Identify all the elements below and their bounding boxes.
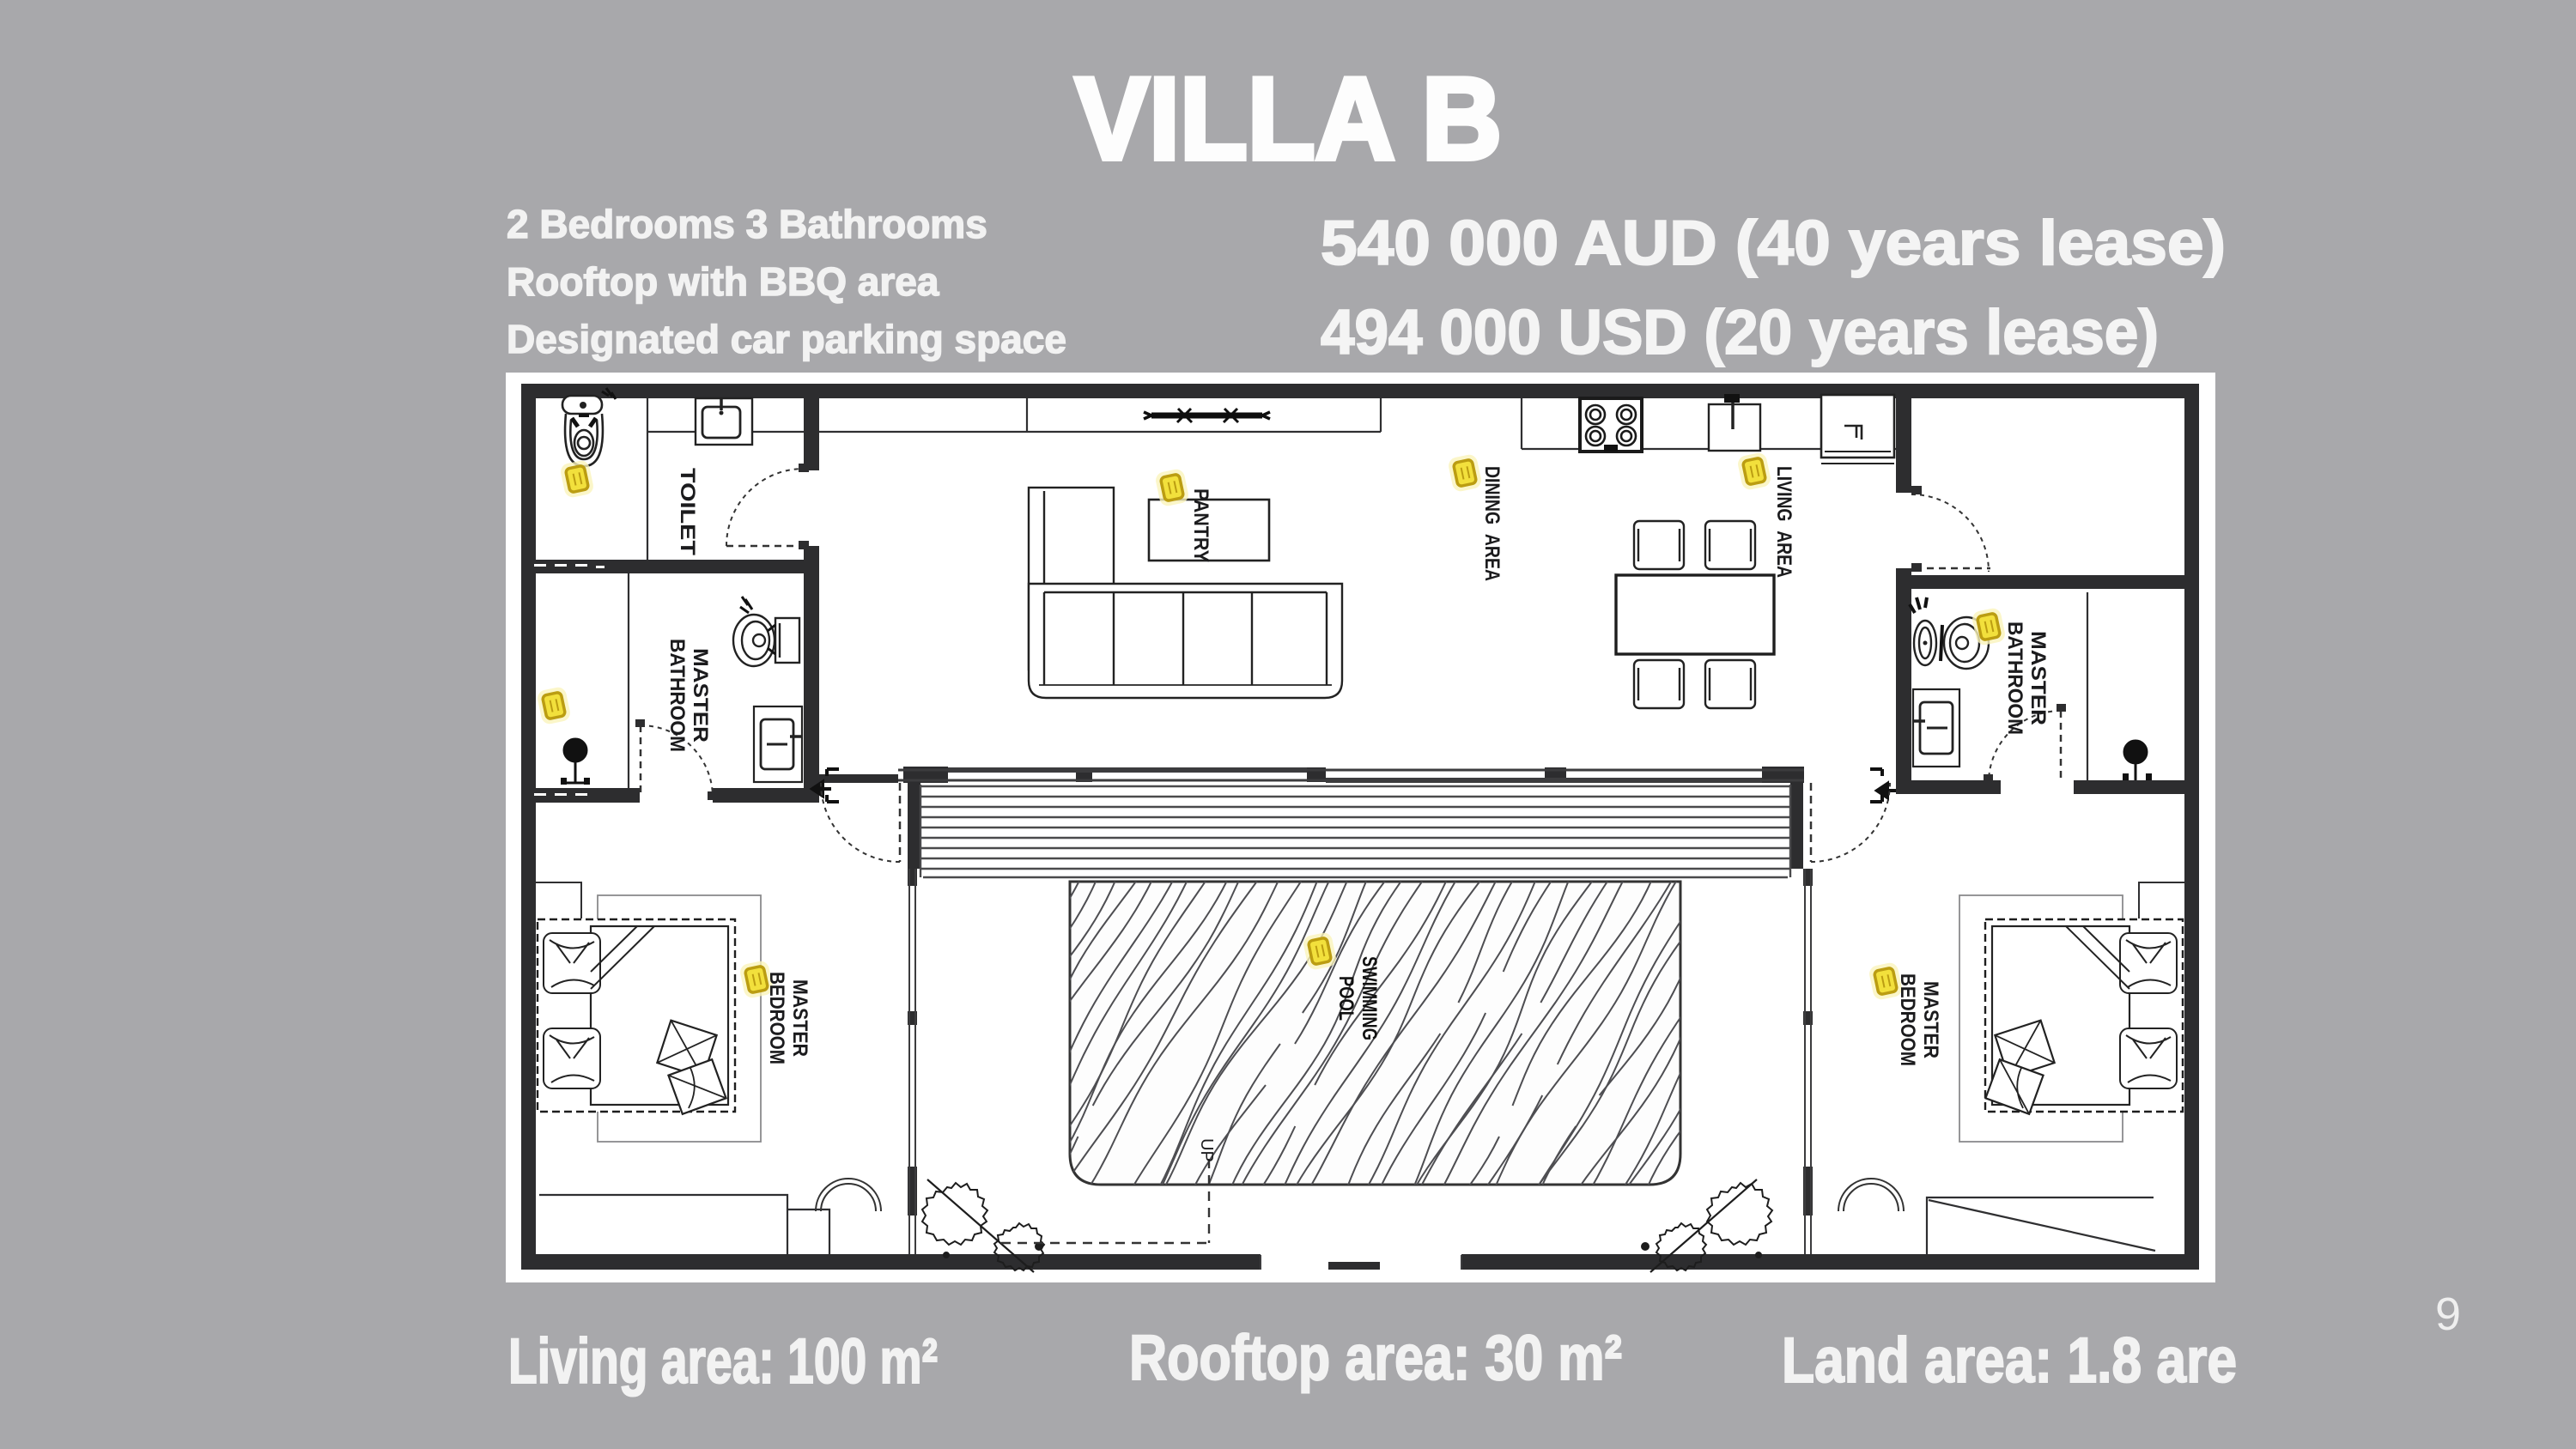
svg-text:MASTER: MASTER	[2026, 631, 2050, 725]
svg-text:MASTER: MASTER	[788, 979, 811, 1057]
svg-text:PANTRY: PANTRY	[1189, 488, 1212, 562]
svg-text:BEDROOM: BEDROOM	[1896, 973, 1919, 1066]
svg-text:Living area: 100 m²: Living area: 100 m²	[508, 1325, 938, 1397]
svg-text:LIVING AREA: LIVING AREA	[1772, 466, 1795, 578]
svg-text:BEDROOM: BEDROOM	[765, 972, 788, 1064]
svg-text:TOILET: TOILET	[676, 468, 699, 555]
svg-text:BATHROOM: BATHROOM	[665, 639, 689, 752]
svg-text:MASTER: MASTER	[689, 648, 712, 743]
svg-text:MASTER: MASTER	[1919, 981, 1942, 1058]
svg-text:POOL: POOL	[1334, 976, 1358, 1021]
svg-text:DINING AREA: DINING AREA	[1480, 466, 1504, 581]
svg-text:494 000 USD (20 years lease): 494 000 USD (20 years lease)	[1321, 298, 2159, 367]
svg-text:SWIMMING: SWIMMING	[1358, 956, 1381, 1040]
svg-text:VILLA B: VILLA B	[1075, 53, 1502, 184]
svg-text:9: 9	[2435, 1288, 2461, 1340]
svg-text:Rooftop area: 30 m²: Rooftop area: 30 m²	[1129, 1322, 1622, 1393]
svg-text:Land area: 1.8 are: Land area: 1.8 are	[1782, 1325, 2237, 1396]
svg-text:540 000 AUD (40 years lease): 540 000 AUD (40 years lease)	[1321, 209, 2226, 278]
svg-text:UP: UP	[1197, 1138, 1216, 1162]
svg-text:BATHROOM: BATHROOM	[2003, 621, 2026, 735]
